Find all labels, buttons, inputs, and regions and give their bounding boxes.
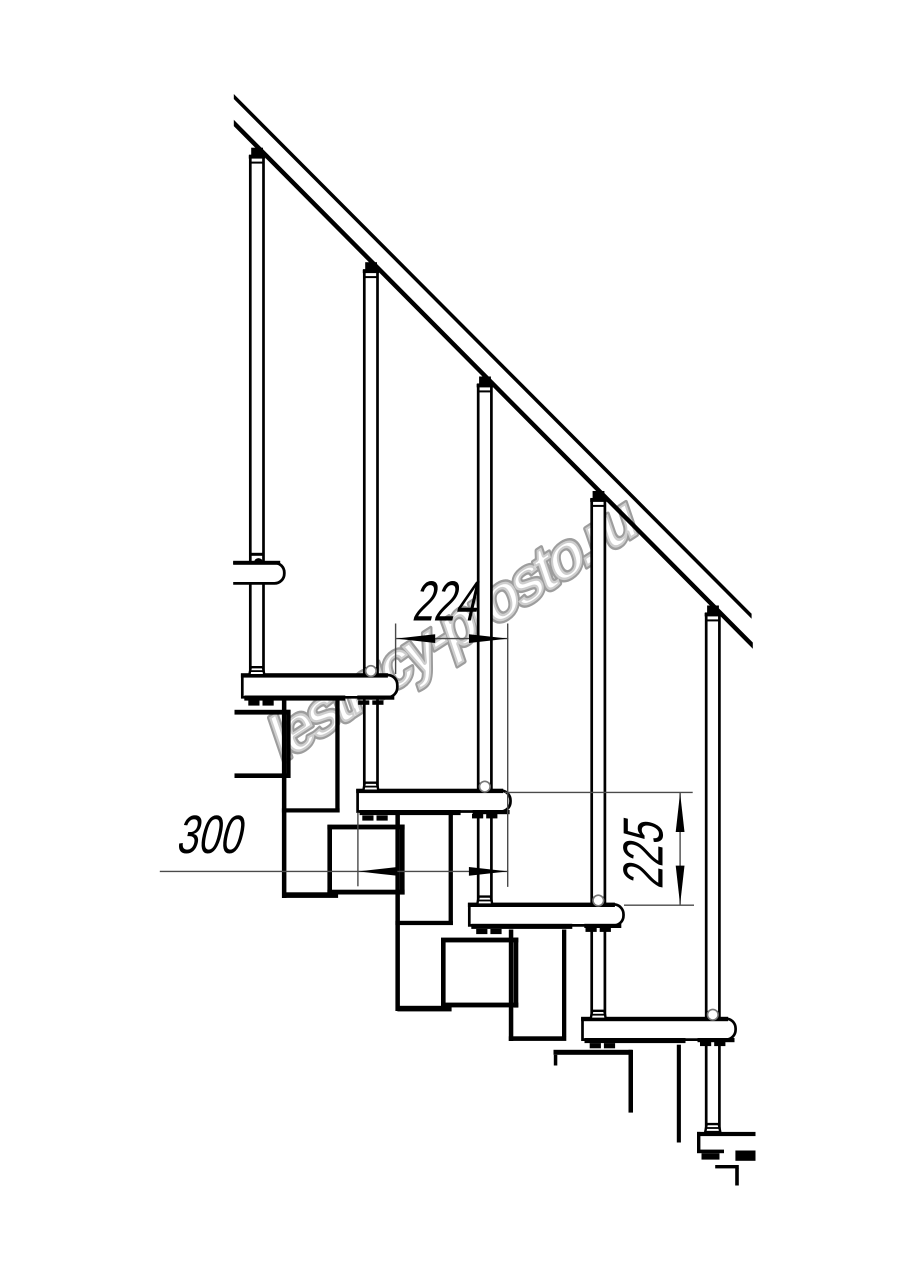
svg-text:300: 300 [173,806,252,866]
